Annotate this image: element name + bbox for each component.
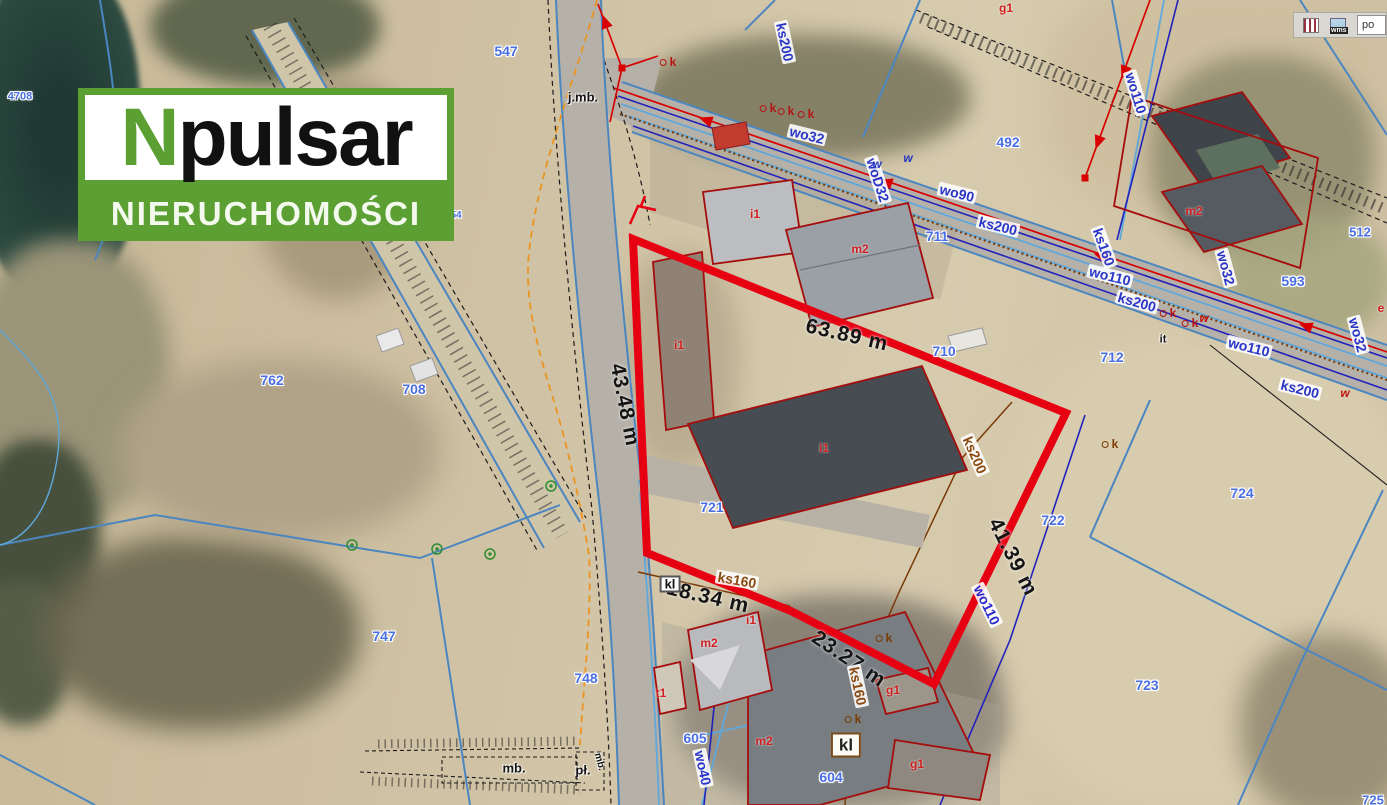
- terrain-trees: [640, 35, 970, 160]
- utility-lines-brown: [620, 114, 1387, 805]
- utility-label-blue: wo110: [1123, 69, 1150, 117]
- dimension-label: 23.27 m: [808, 627, 889, 691]
- k-point-label: k: [1182, 317, 1199, 329]
- terrain-grass: [1225, 215, 1387, 340]
- utility-label-blue: ks160: [1090, 224, 1118, 269]
- text-annotation: it: [1160, 335, 1167, 346]
- logo-brand-rest: pulsar: [178, 91, 412, 185]
- building-label: i1: [746, 614, 756, 626]
- parcel-number: 747: [372, 629, 395, 643]
- dimension-label: 18.34 m: [665, 577, 752, 616]
- k-point-label-brown: k: [845, 713, 862, 725]
- property-boundary-polygon: [633, 239, 1066, 684]
- utility-label-blue: wo32: [786, 123, 827, 146]
- parcel-number: 605: [683, 731, 706, 745]
- building-label: i1: [674, 339, 684, 351]
- utility-label-blue: wo90: [936, 181, 977, 204]
- parcel-number: 712: [1100, 350, 1123, 364]
- parcel-number: 4708: [8, 92, 32, 103]
- agency-logo-wordmark: Npulsar: [78, 88, 454, 187]
- k-point-label: k: [760, 102, 777, 114]
- terrain-marsh: [0, 240, 170, 520]
- utility-label-blue: ks200: [1277, 377, 1322, 401]
- building-label: i1: [750, 208, 760, 220]
- utility-label-blue: wo110: [1225, 335, 1273, 360]
- parcel-number: 748: [574, 671, 597, 685]
- terrain-marsh: [0, 440, 100, 625]
- telecom-line-orange: [528, 0, 597, 745]
- parcel-number: 593: [1281, 274, 1304, 288]
- parcel-number: 547: [494, 44, 517, 58]
- text-annotation: mb.: [592, 752, 606, 772]
- power-lines-red: [598, 0, 1387, 352]
- w-point-label-red: w: [1199, 312, 1208, 324]
- logo-letter-n: N: [120, 91, 177, 185]
- logo-subtitle: NIERUCHOMOŚCI: [111, 195, 421, 233]
- utility-label-brown: ks160: [715, 569, 760, 590]
- text-annotation: j.mb.: [568, 91, 598, 104]
- building-label: m2: [1185, 205, 1202, 217]
- k-point-label-brown: k: [1102, 438, 1119, 450]
- building-label: i1: [819, 442, 829, 454]
- parcel-number: 492: [996, 135, 1019, 149]
- terrain-shadow: [120, 360, 440, 540]
- kl-label: kl: [660, 576, 681, 593]
- building-label: g1: [886, 684, 900, 696]
- k-point-label-brown: k: [876, 632, 893, 644]
- terrain-marsh: [0, 580, 70, 725]
- w-point-label-red: w: [1340, 387, 1349, 399]
- parcel-number: 711: [926, 229, 949, 243]
- utility-label-blue: ks200: [975, 214, 1020, 238]
- w-point-label: w: [903, 152, 912, 164]
- text-annotation: pł.: [575, 764, 590, 777]
- parcel-number: 722: [1041, 513, 1064, 527]
- utility-label-blue: wo32: [1214, 247, 1238, 288]
- building-label: g1: [910, 758, 924, 770]
- utility-label-blue: woD32: [864, 154, 892, 205]
- parcel-number: 723: [1135, 678, 1158, 692]
- building-label: m2: [851, 243, 868, 255]
- utility-label-blue: ks200: [1114, 289, 1159, 314]
- dimension-label: 43.48 m: [607, 362, 644, 449]
- utility-label-blue: wo32: [1346, 314, 1370, 355]
- text-annotation: mb.: [502, 762, 525, 775]
- utility-lines-navy: [618, 0, 1387, 805]
- utility-label-brown: ks160: [847, 664, 870, 709]
- parcel-number: 721: [700, 500, 723, 514]
- kl-label-large: kl: [831, 733, 861, 758]
- k-point-label: k: [660, 56, 677, 68]
- k-point-label: k: [778, 105, 795, 117]
- tree-symbols: [347, 481, 556, 559]
- property-boundary: [630, 196, 1066, 684]
- building-label: m2: [755, 735, 772, 747]
- clipped-toolbar-button[interactable]: po: [1357, 15, 1386, 35]
- utility-label-blue: ks200: [774, 20, 797, 65]
- agency-logo: Npulsar NIERUCHOMOŚCI: [78, 88, 454, 241]
- terrain-shadow: [675, 595, 1010, 805]
- parcel-number: 604: [819, 770, 842, 784]
- w-point-label: w: [872, 158, 881, 170]
- parcel-number: 724: [1230, 486, 1253, 500]
- parcel-number: 708: [402, 382, 425, 396]
- utility-label-brown: ks200: [960, 433, 990, 478]
- k-point-label: k: [798, 108, 815, 120]
- dimension-label: 63.89 m: [804, 315, 891, 354]
- parcel-number: 710: [932, 344, 955, 358]
- parcel-number: 725: [1362, 794, 1384, 805]
- parcel-number: 512: [1349, 226, 1371, 239]
- wms-layer-icon[interactable]: wms: [1330, 18, 1346, 33]
- building-label: t1: [656, 687, 667, 699]
- terrain-trees: [1150, 55, 1375, 260]
- building-label: g1: [999, 2, 1013, 14]
- terrain-trees: [1240, 635, 1387, 805]
- terrain-trees: [150, 0, 380, 85]
- legend-grid-icon[interactable]: [1303, 18, 1319, 33]
- dimension-label: 41.39 m: [985, 515, 1042, 599]
- utility-label-blue: wo110: [1086, 264, 1134, 289]
- building-label: m2: [700, 637, 717, 649]
- k-point-label: k: [1160, 307, 1177, 319]
- map-toolbar: wms po: [1293, 12, 1387, 38]
- map-canvas[interactable]: 63.89 m43.48 m41.39 m18.34 m23.27 m47085…: [0, 0, 1387, 805]
- building-label: e: [1378, 302, 1385, 314]
- agency-logo-subtitle-bar: NIERUCHOMOŚCI: [78, 187, 454, 241]
- wms-icon-label: wms: [1330, 27, 1348, 34]
- utility-label-navy: wo110: [971, 581, 1004, 629]
- utility-label-blue: wo40: [692, 747, 714, 788]
- parcel-number: 762: [260, 373, 283, 387]
- terrain-trees: [40, 535, 360, 730]
- buildings: [376, 92, 1318, 805]
- terrain-shadow: [620, 250, 740, 470]
- terrain-field: [1000, 330, 1387, 805]
